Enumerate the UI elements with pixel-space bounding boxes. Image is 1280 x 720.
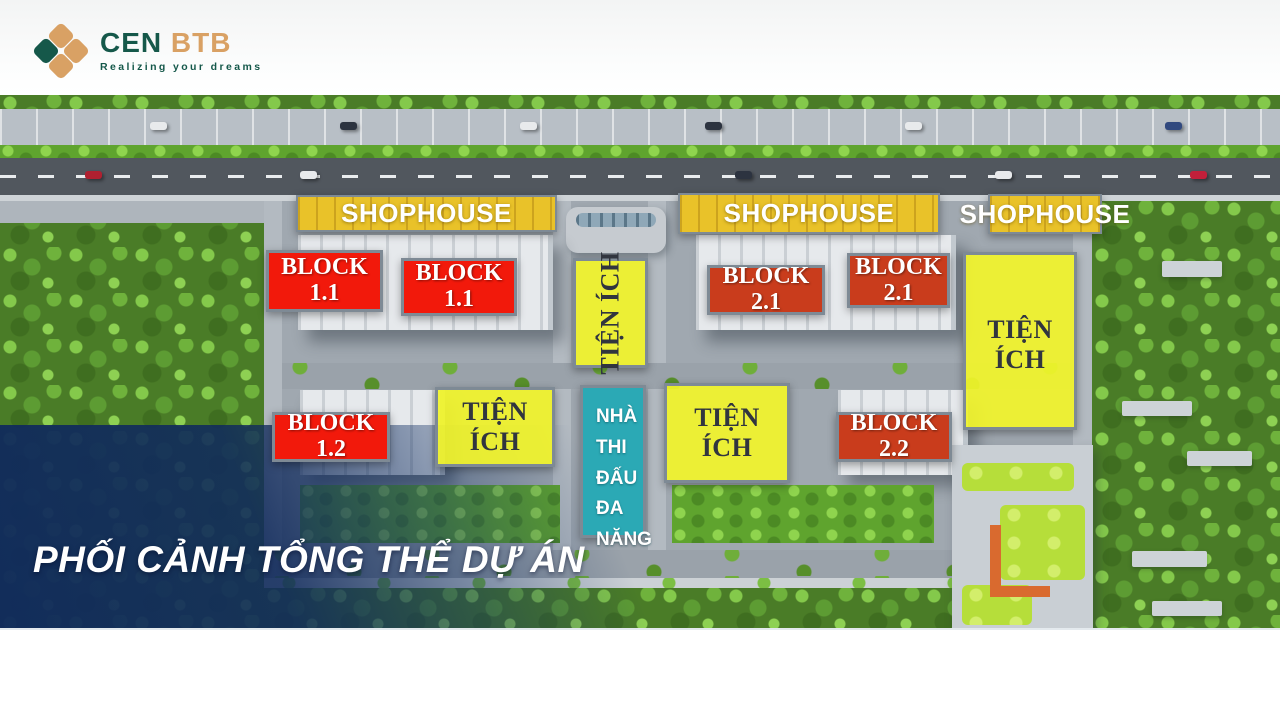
footer-band xyxy=(0,628,1280,720)
vehicle xyxy=(1190,171,1207,179)
amenity-label: TIỆN ÍCH xyxy=(596,251,626,374)
bus-canopy xyxy=(576,213,656,227)
brand-tagline: Realizing your dreams xyxy=(100,61,262,73)
aerial-site-render: SHOPHOUSE SHOPHOUSE SHOPHOUSE BLOCK 1.1 … xyxy=(0,95,1280,628)
amenity-zone-right: TIỆN ÍCH xyxy=(963,252,1077,430)
sports-hall-line: ĐẤU xyxy=(596,468,637,489)
vehicle xyxy=(150,122,167,130)
vehicle xyxy=(300,171,317,179)
block-name: BLOCK xyxy=(723,263,810,289)
road-median-trees xyxy=(0,145,1280,158)
block-1-1-label-b: BLOCK 1.1 xyxy=(401,258,517,316)
vehicle xyxy=(705,122,722,130)
vehicle xyxy=(735,171,752,179)
brand-name-primary: CEN xyxy=(100,27,162,58)
header-band: CEN BTB Realizing your dreams xyxy=(0,0,1280,95)
tree-row-top xyxy=(0,95,1280,109)
block-1-1-label-a: BLOCK 1.1 xyxy=(266,250,383,312)
block-name: BLOCK xyxy=(281,254,368,280)
sports-hall-label: NHÀ THI ĐẤU ĐA NĂNG xyxy=(580,385,646,538)
park-path xyxy=(1162,261,1222,277)
brand-name-secondary: BTB xyxy=(171,27,232,58)
logo-text: CEN BTB Realizing your dreams xyxy=(100,29,262,73)
vehicle xyxy=(995,171,1012,179)
page-title: PHỐI CẢNH TỔNG THỂ DỰ ÁN xyxy=(33,539,585,581)
block-name: BLOCK xyxy=(855,254,942,280)
block-number: 2.2 xyxy=(879,436,909,462)
parking-road-top xyxy=(0,109,1280,145)
park-path xyxy=(1132,551,1207,567)
school-complex xyxy=(952,445,1093,628)
park-path xyxy=(1187,451,1252,466)
block-number: 1.2 xyxy=(316,436,346,462)
presentation-slide: CEN BTB Realizing your dreams xyxy=(0,0,1280,720)
block-number: 1.1 xyxy=(310,280,340,306)
school-lawn xyxy=(1000,505,1085,580)
sports-hall-line: ĐA xyxy=(596,498,623,519)
amenity-zone-left: TIỆN ÍCH xyxy=(435,387,555,467)
vehicle xyxy=(1165,122,1182,130)
park-left-road xyxy=(0,201,264,223)
block-1-2-label: BLOCK 1.2 xyxy=(272,412,390,462)
sports-hall-line: NHÀ xyxy=(596,406,637,427)
block-number: 1.1 xyxy=(444,286,474,312)
vehicle xyxy=(905,122,922,130)
amenity-zone-center: TIỆN ÍCH xyxy=(664,383,790,483)
vehicle xyxy=(85,171,102,179)
main-road xyxy=(0,158,1280,195)
shophouse-banner-3: SHOPHOUSE xyxy=(988,194,1102,234)
logo-mark-icon xyxy=(36,26,86,76)
block-name: BLOCK xyxy=(288,410,375,436)
block-number: 2.1 xyxy=(884,280,914,306)
brand-logo: CEN BTB Realizing your dreams xyxy=(36,26,262,76)
park-path xyxy=(1122,401,1192,416)
block-name: BLOCK xyxy=(851,410,938,436)
vehicle xyxy=(340,122,357,130)
sports-hall-line: NĂNG xyxy=(596,529,652,550)
school-lawn xyxy=(962,463,1074,491)
block-name: BLOCK xyxy=(416,260,503,286)
block-number: 2.1 xyxy=(751,289,781,315)
school-building xyxy=(990,586,1050,597)
block-2-1-label-a: BLOCK 2.1 xyxy=(707,265,825,315)
block-2-2-label: BLOCK 2.2 xyxy=(836,412,952,462)
amenity-zone-center-top: TIỆN ÍCH xyxy=(573,258,648,368)
shophouse-banner-1: SHOPHOUSE xyxy=(296,195,557,232)
park-path xyxy=(1152,601,1222,616)
vehicle xyxy=(520,122,537,130)
sports-hall-line: THI xyxy=(596,437,627,458)
shophouse-banner-2: SHOPHOUSE xyxy=(678,193,940,234)
block-2-1-label-b: BLOCK 2.1 xyxy=(847,253,950,308)
park-right xyxy=(1092,201,1280,628)
